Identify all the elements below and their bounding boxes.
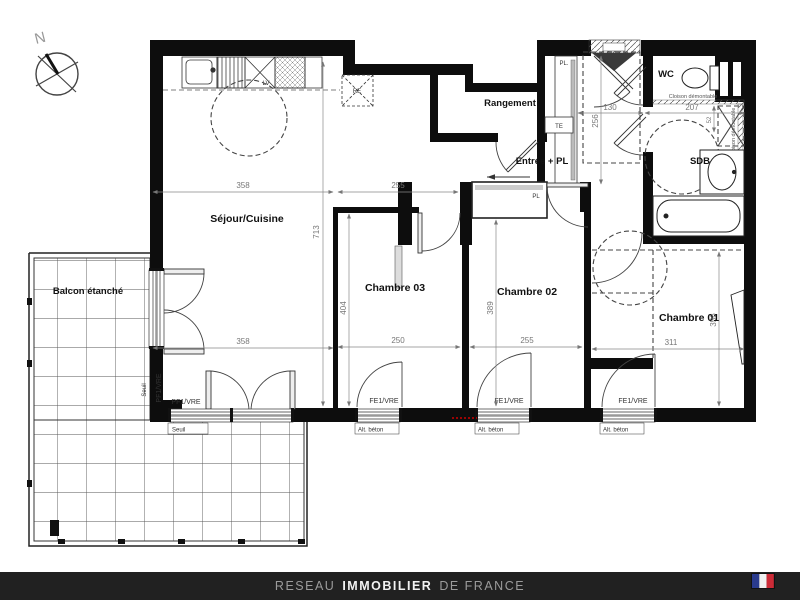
banner-text-part1: RESEAU bbox=[275, 579, 335, 593]
chambre03-label: Chambre 03 bbox=[365, 282, 425, 294]
dim-text: 256 bbox=[591, 114, 600, 128]
dim-text: 389 bbox=[486, 301, 495, 315]
dim-text: 358 bbox=[236, 337, 250, 346]
dim-text: 207 bbox=[685, 103, 699, 112]
balcony-west-door-arc bbox=[164, 310, 204, 350]
toilet-tank bbox=[710, 66, 719, 90]
dim-text: 52 bbox=[707, 116, 713, 123]
banner-text: RESEAUIMMOBILIERDE FRANCE bbox=[275, 579, 525, 593]
compass-north-label: N bbox=[33, 29, 48, 48]
washbasin-tap bbox=[732, 170, 735, 173]
sejour-label: Séjour/Cuisine bbox=[210, 213, 284, 225]
compass: N bbox=[33, 29, 78, 95]
balcony-label: Balcon étanché bbox=[53, 286, 123, 297]
balcony-west-door-arc bbox=[164, 273, 204, 313]
sill-label: Alt. béton bbox=[478, 428, 503, 434]
dim-text: 358 bbox=[236, 181, 250, 190]
dim-text: 130 bbox=[603, 103, 617, 112]
balcony-tiles-lower bbox=[34, 420, 304, 541]
toilet-bowl bbox=[682, 68, 708, 88]
chambre01-door-arc bbox=[592, 233, 642, 283]
electrical-panel-label: TE bbox=[555, 124, 563, 130]
turning-circle-hall bbox=[593, 231, 667, 305]
french-flag-icon bbox=[752, 574, 775, 589]
door-leaf bbox=[547, 183, 588, 187]
balcony: Balcon étanché bbox=[27, 253, 307, 546]
window-label: PF1/VRE bbox=[171, 399, 201, 406]
kitchen-sink bbox=[186, 60, 212, 84]
flag-red-stripe bbox=[767, 574, 774, 588]
wc-door-leaf bbox=[614, 64, 646, 96]
kitchen-rack-unit bbox=[217, 57, 245, 88]
chambre02-label: Chambre 02 bbox=[497, 286, 557, 298]
chambre02-closet-label: PL bbox=[532, 194, 540, 200]
dishwasher-cross bbox=[245, 57, 275, 88]
rangement-door-arc bbox=[496, 142, 508, 172]
entree-label: Entrée + PL bbox=[516, 156, 569, 167]
chambre01-label: Chambre 01 bbox=[659, 312, 719, 324]
dim-text: 404 bbox=[339, 301, 348, 315]
door-leaf bbox=[290, 371, 295, 409]
cloison-label-vertical: Cloison démontable bbox=[731, 108, 737, 157]
bathtub-tap bbox=[664, 214, 668, 218]
chambre01-sliding-shutter bbox=[731, 290, 744, 364]
balcony-tiles-upper bbox=[34, 258, 150, 420]
balcony-south-door-arc bbox=[251, 371, 291, 411]
sliding-arrow-head bbox=[487, 174, 495, 180]
wc-label: WC bbox=[658, 69, 674, 80]
entrance-threshold bbox=[589, 40, 640, 71]
sdb-label: SDB bbox=[690, 156, 710, 167]
window-label: FE1/VRE bbox=[494, 398, 524, 405]
door-leaf bbox=[206, 371, 211, 409]
sill-label: Seuil bbox=[172, 428, 185, 434]
window-label: FE1/VRE bbox=[369, 398, 399, 405]
floor-plan-drawing: N Balcon étanché LV RE bbox=[0, 0, 800, 600]
sill-label: Alt. béton bbox=[358, 428, 383, 434]
banner-text-part2: IMMOBILIER bbox=[342, 579, 432, 593]
chambre03-door-arc bbox=[422, 213, 460, 251]
banner-text-part3: DE FRANCE bbox=[439, 579, 525, 593]
fridge-label: RE bbox=[353, 89, 361, 95]
cloison-label: Cloison démontable bbox=[669, 94, 718, 100]
duct-slot bbox=[720, 62, 728, 96]
dim-text: 250 bbox=[391, 336, 405, 345]
floor-plan-page: N Balcon étanché LV RE bbox=[0, 0, 800, 600]
dim-text: 311 bbox=[665, 338, 678, 347]
sill-label: Alt. béton bbox=[603, 428, 628, 434]
balcony-south-door-arc bbox=[209, 371, 249, 411]
dim-text: 713 bbox=[312, 225, 321, 239]
entrance-door-marker bbox=[592, 53, 636, 71]
window-fe-chambre03: FE1/VRE Alt. béton bbox=[355, 362, 402, 434]
flag-blue-stripe bbox=[752, 574, 759, 588]
compass-needle bbox=[46, 54, 58, 74]
window-label: PF1/VRE bbox=[156, 373, 163, 403]
dim-text: 255 bbox=[391, 181, 405, 190]
sdb-door-leaf bbox=[614, 114, 646, 146]
flag-white-stripe bbox=[759, 574, 766, 588]
rangement-label: Rangement bbox=[484, 98, 537, 109]
footer-banner: RESEAUIMMOBILIERDE FRANCE bbox=[0, 572, 800, 600]
hob-unit bbox=[275, 57, 305, 88]
kitchen-tap bbox=[211, 68, 215, 72]
door-leaf bbox=[164, 349, 204, 354]
chambre02-closet-shelf bbox=[475, 185, 543, 190]
washbasin bbox=[708, 154, 736, 190]
window-label: FE1/VRE bbox=[618, 398, 648, 405]
dim-text: 255 bbox=[520, 336, 534, 345]
duct-slot bbox=[733, 62, 741, 96]
bathtub-inner bbox=[657, 200, 740, 232]
sill-label: Seuil bbox=[142, 383, 148, 396]
door-leaf bbox=[418, 213, 422, 253]
entrance-closet-label: PL. bbox=[559, 61, 568, 67]
threshold-sill bbox=[603, 43, 625, 51]
turning-circle-sejour bbox=[211, 80, 287, 156]
door-leaf bbox=[164, 269, 204, 274]
